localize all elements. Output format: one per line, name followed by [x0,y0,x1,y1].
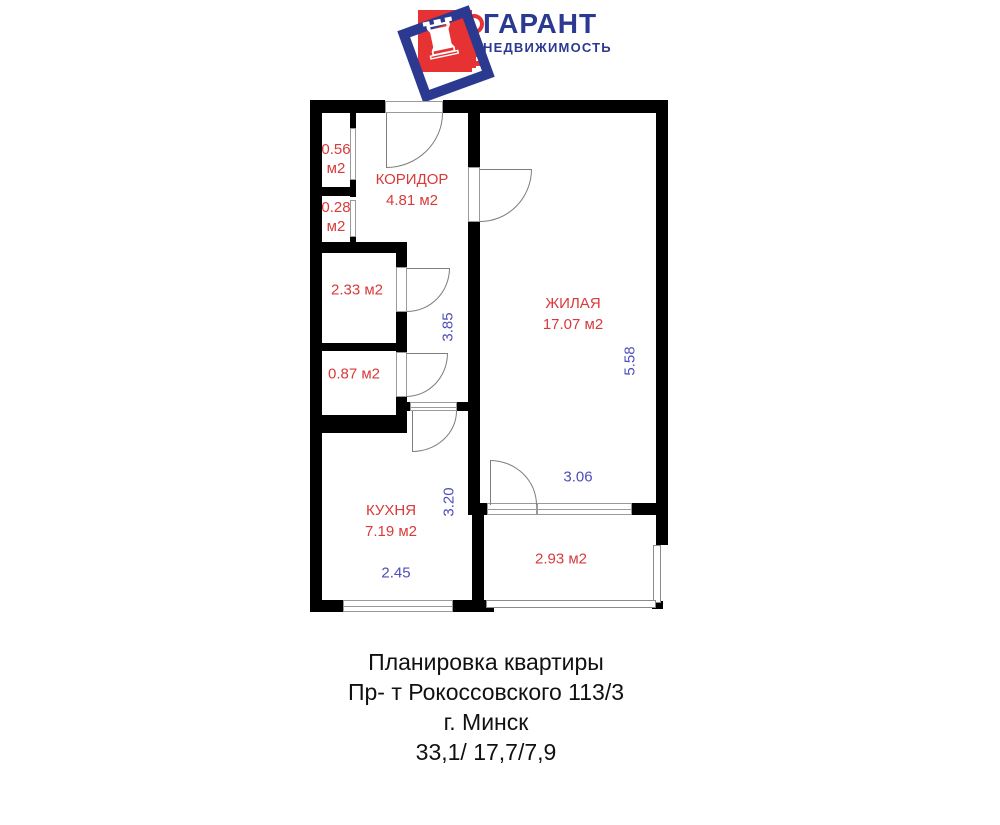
dim-corridor-length: 3.85 [440,312,457,341]
plan-caption: Планировка квартиры Пр- т Рокоссовского … [0,647,972,767]
room-label-closet-lower: 0.28 м2 [321,198,350,236]
balcony-window [537,503,632,515]
closet-lower-opening [350,200,356,237]
wall-segment [396,312,407,352]
wall-segment [310,242,407,253]
dim-kitchen-width: 2.45 [381,565,410,582]
wall-segment [453,600,480,612]
entrance-door-swing [386,113,443,168]
room-label-wc: 0.87 м2 [328,364,380,385]
wall-segment [468,113,480,167]
dim-living-width: 3.06 [563,469,592,486]
wall-segment [310,100,322,612]
wall-segment [457,402,468,411]
room-label-corridor: КОРИДОР 4.81 м2 [376,169,449,211]
kitchen-door-opening [410,402,457,411]
caption-city: г. Минск [0,707,972,737]
wall-segment [310,600,343,612]
wall-segment [396,253,407,267]
wall-segment [468,503,487,515]
kitchen-door-swing [412,411,457,452]
bathroom-door-opening [396,267,407,312]
living-door-swing [480,169,532,222]
wall-segment [632,503,668,515]
dim-living-length: 5.58 [622,346,639,375]
room-label-living: ЖИЛАЯ 17.07 м2 [543,293,603,335]
wall-segment [400,402,410,411]
wc-door-swing [406,353,448,397]
wall-segment [322,415,405,433]
wall-segment [656,100,668,545]
caption-address: Пр- т Рокоссовского 113/3 [0,677,972,707]
room-label-closet-top: 0.56 м2 [321,140,350,178]
kitchen-window [343,600,453,612]
wall-segment [443,100,668,113]
caption-title: Планировка квартиры [0,647,972,677]
balcony-railing [653,545,661,603]
closet-top-opening [350,128,356,180]
living-door-opening [468,167,480,222]
wall-segment [472,515,484,612]
entrance-door-opening [385,101,443,113]
room-label-kitchen: КУХНЯ 7.19 м2 [365,500,417,542]
caption-areas: 33,1/ 17,7/7,9 [0,737,972,767]
balcony-door-swing [490,460,537,505]
wall-segment [310,343,396,351]
wall-segment [468,222,480,515]
bathroom-door-swing [407,268,450,312]
balcony-railing [486,600,656,608]
wall-segment [350,113,356,128]
dim-kitchen-length: 3.20 [441,487,458,516]
wall-segment [310,187,356,196]
room-label-bathroom: 2.33 м2 [331,280,383,301]
room-label-balcony: 2.93 м2 [535,549,587,570]
